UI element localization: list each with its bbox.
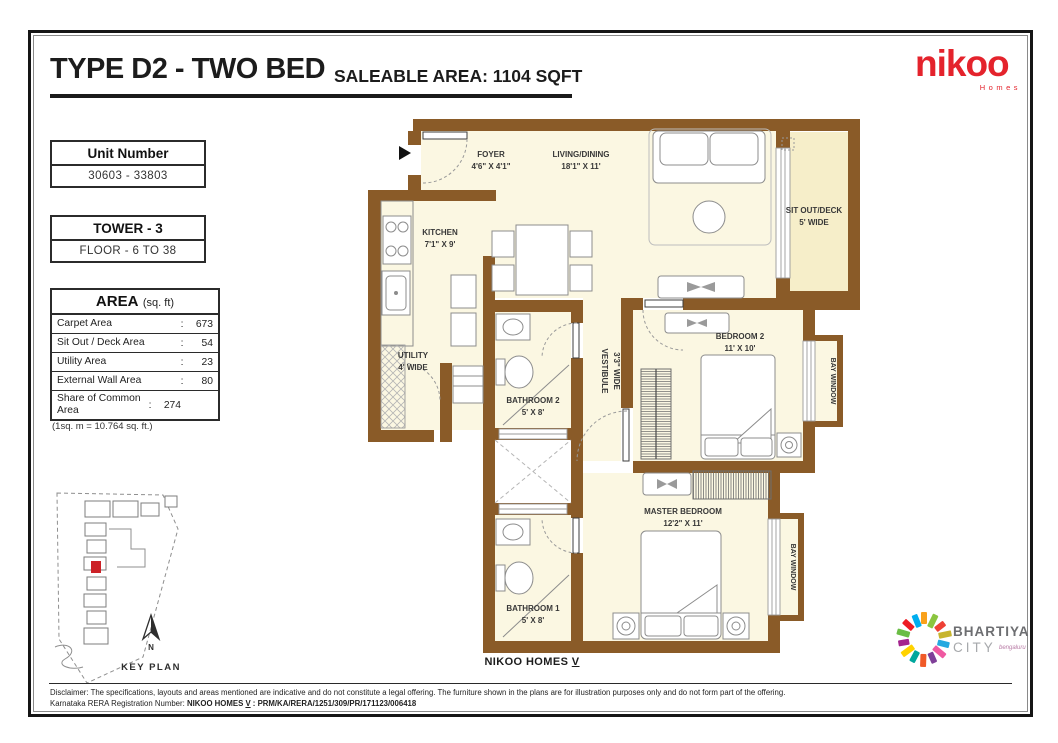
nikoo-logo-text: nikoo: [915, 45, 1025, 82]
area-row-value: 23: [187, 357, 213, 368]
bhartiya-logo-word2: CITY: [953, 640, 996, 655]
area-row-colon: :: [177, 319, 187, 330]
room-label-bedroom2: BEDROOM 2: [716, 332, 765, 341]
room-dims-bedroom2: 11' X 10': [725, 344, 756, 353]
site-boundary: [57, 493, 178, 683]
washing-machine: [453, 366, 483, 403]
table-row: Sit Out / Deck Area : 54: [52, 334, 218, 353]
plan-footer: NIKOO HOMES V: [432, 656, 632, 668]
floor-plan: FOYER 4'6" X 4'1" LIVING/DINING 18'1" X …: [365, 113, 865, 673]
room-label-master-bedroom: MASTER BEDROOM: [644, 507, 722, 516]
footer-divider: [49, 683, 1012, 684]
disclaimer-line2: Karnataka RERA Registration Number: NIKO…: [50, 699, 1015, 710]
dining-table: [516, 225, 568, 295]
area-row-value: 54: [187, 338, 213, 349]
room-label-bathroom2: BATHROOM 2: [506, 396, 560, 405]
table-row: Carpet Area : 673: [52, 315, 218, 334]
room-label-utility: UTILITY: [398, 351, 429, 360]
floor-range-value: FLOOR - 6 TO 38: [52, 241, 204, 261]
entry-door-leaf: [423, 132, 467, 139]
tower-header: TOWER - 3: [52, 217, 204, 241]
unit-number-box: Unit Number 30603 - 33803: [50, 140, 206, 188]
bathroom1-door-leaf: [573, 518, 579, 553]
pillow: [645, 616, 681, 636]
coffee-table: [693, 201, 725, 233]
north-arrow-icon: N: [143, 615, 159, 652]
room-dims-master-bedroom: 12'2" X 11': [663, 519, 702, 528]
room-label-vestibule: VESTIBULE: [600, 349, 609, 395]
table-row: Utility Area : 23: [52, 353, 218, 372]
area-row-colon: :: [145, 400, 155, 411]
area-row-label: Sit Out / Deck Area: [57, 337, 177, 349]
plan-footer-text: NIKOO HOMES: [484, 656, 568, 668]
conversion-note: (1sq. m = 10.764 sq. ft.): [52, 421, 153, 432]
tower-box: TOWER - 3 FLOOR - 6 TO 38: [50, 215, 206, 263]
wc-tank: [496, 359, 505, 385]
dining-chair: [570, 265, 592, 291]
bedroom2-bay-window-glass: [803, 341, 815, 421]
area-row-label: Carpet Area: [57, 318, 177, 330]
area-title-unit: (sq. ft): [143, 297, 174, 309]
area-row-value: 274: [155, 400, 181, 411]
key-plan-buildings: [55, 501, 159, 668]
area-row-colon: :: [177, 357, 187, 368]
room-dims-vestibule: 3'3" WIDE: [612, 352, 621, 390]
unit-location-marker: [91, 561, 101, 573]
dining-chair: [492, 231, 514, 257]
nikoo-logo-subtext: Homes: [915, 83, 1025, 92]
area-row-label: External Wall Area: [57, 375, 177, 387]
sofa: [653, 131, 765, 183]
room-dims-bathroom2: 5' X 8': [522, 408, 545, 417]
area-row-value: 80: [187, 376, 213, 387]
area-table: AREA (sq. ft) Carpet Area : 673 Sit Out …: [50, 288, 220, 421]
area-row-value: 673: [187, 319, 213, 330]
room-dims-living-dining: 18'1" X 11': [561, 162, 600, 171]
room-dims-sitout-deck: 5' WIDE: [799, 218, 829, 227]
dining-chair: [570, 231, 592, 257]
room-label-kitchen: KITCHEN: [422, 228, 458, 237]
unit-number-header: Unit Number: [52, 142, 204, 166]
saleable-area-label: SALEABLE AREA: 1104 SQFT: [334, 66, 582, 87]
room-dims-foyer: 4'6" X 4'1": [472, 162, 511, 171]
washbasin: [496, 519, 530, 545]
title-underline: [50, 94, 572, 98]
room-dims-kitchen: 7'1" X 9': [425, 240, 456, 249]
room-dims-bathroom1: 5' X 8': [522, 616, 545, 625]
disclaimer-line1: Disclaimer: The specifications, layouts …: [50, 688, 1015, 699]
unit-number-value: 30603 - 33803: [52, 166, 204, 186]
wardrobe: [693, 471, 771, 499]
area-row-colon: :: [177, 376, 187, 387]
bhartiya-logo-word1: BHARTIYA: [953, 624, 1030, 639]
room-label-living-dining: LIVING/DINING: [553, 150, 610, 159]
area-title-text: AREA: [96, 293, 139, 310]
bhartiya-city-logo: BHARTIYA CITY bengaluru: [891, 599, 1031, 683]
key-plan-label: KEY PLAN: [121, 662, 181, 673]
area-table-title: AREA (sq. ft): [52, 290, 218, 315]
master-bay-window-glass: [768, 519, 780, 615]
bedroom2-door-leaf: [645, 300, 683, 307]
pillow: [684, 616, 718, 636]
north-label: N: [148, 643, 154, 652]
key-plan: N KEY PLAN: [45, 489, 245, 694]
area-row-label: Share of Common Area: [57, 393, 145, 417]
page-title: TYPE D2 - TWO BED: [50, 53, 325, 86]
table-row: Share of Common Area : 274: [52, 391, 218, 419]
entry-arrow-icon: [399, 146, 411, 160]
kitchen-cabinet: [451, 275, 476, 308]
wc: [505, 356, 533, 388]
plan-footer-phase: V: [572, 656, 580, 668]
dining-chair: [492, 265, 514, 291]
pillow: [705, 438, 738, 456]
brochure-page: TYPE D2 - TWO BED SALEABLE AREA: 1104 SQ…: [28, 30, 1033, 717]
master-door-leaf: [623, 409, 629, 461]
bathroom2-door-leaf: [573, 323, 579, 358]
rera-project: NIKOO HOMES: [187, 699, 245, 708]
washbasin: [496, 314, 530, 340]
nikoo-homes-logo: nikoo Homes: [915, 45, 1025, 92]
pillow: [741, 438, 772, 456]
bhartiya-logo-subtext: bengaluru: [999, 645, 1026, 651]
area-row-label: Utility Area: [57, 356, 177, 368]
rera-number: : PRM/KA/RERA/1251/309/PR/171123/006418: [251, 699, 417, 708]
area-row-colon: :: [177, 338, 187, 349]
room-label-sitout-deck: SIT OUT/DECK: [786, 206, 843, 215]
room-label-foyer: FOYER: [477, 150, 505, 159]
room-label-bathroom1: BATHROOM 1: [506, 604, 560, 613]
wc: [505, 562, 533, 594]
bhartiya-ring-icon: [896, 612, 952, 667]
disclaimer: Disclaimer: The specifications, layouts …: [50, 688, 1015, 710]
table-row: External Wall Area : 80: [52, 372, 218, 391]
kitchen-cabinet: [451, 313, 476, 346]
room-label-bay-window-bedroom2: BAY WINDOW: [829, 358, 836, 405]
rera-prefix: Karnataka RERA Registration Number:: [50, 699, 187, 708]
room-label-bay-window-master: BAY WINDOW: [789, 544, 796, 591]
room-dims-utility: 4' WIDE: [398, 363, 428, 372]
wc-tank: [496, 565, 505, 591]
